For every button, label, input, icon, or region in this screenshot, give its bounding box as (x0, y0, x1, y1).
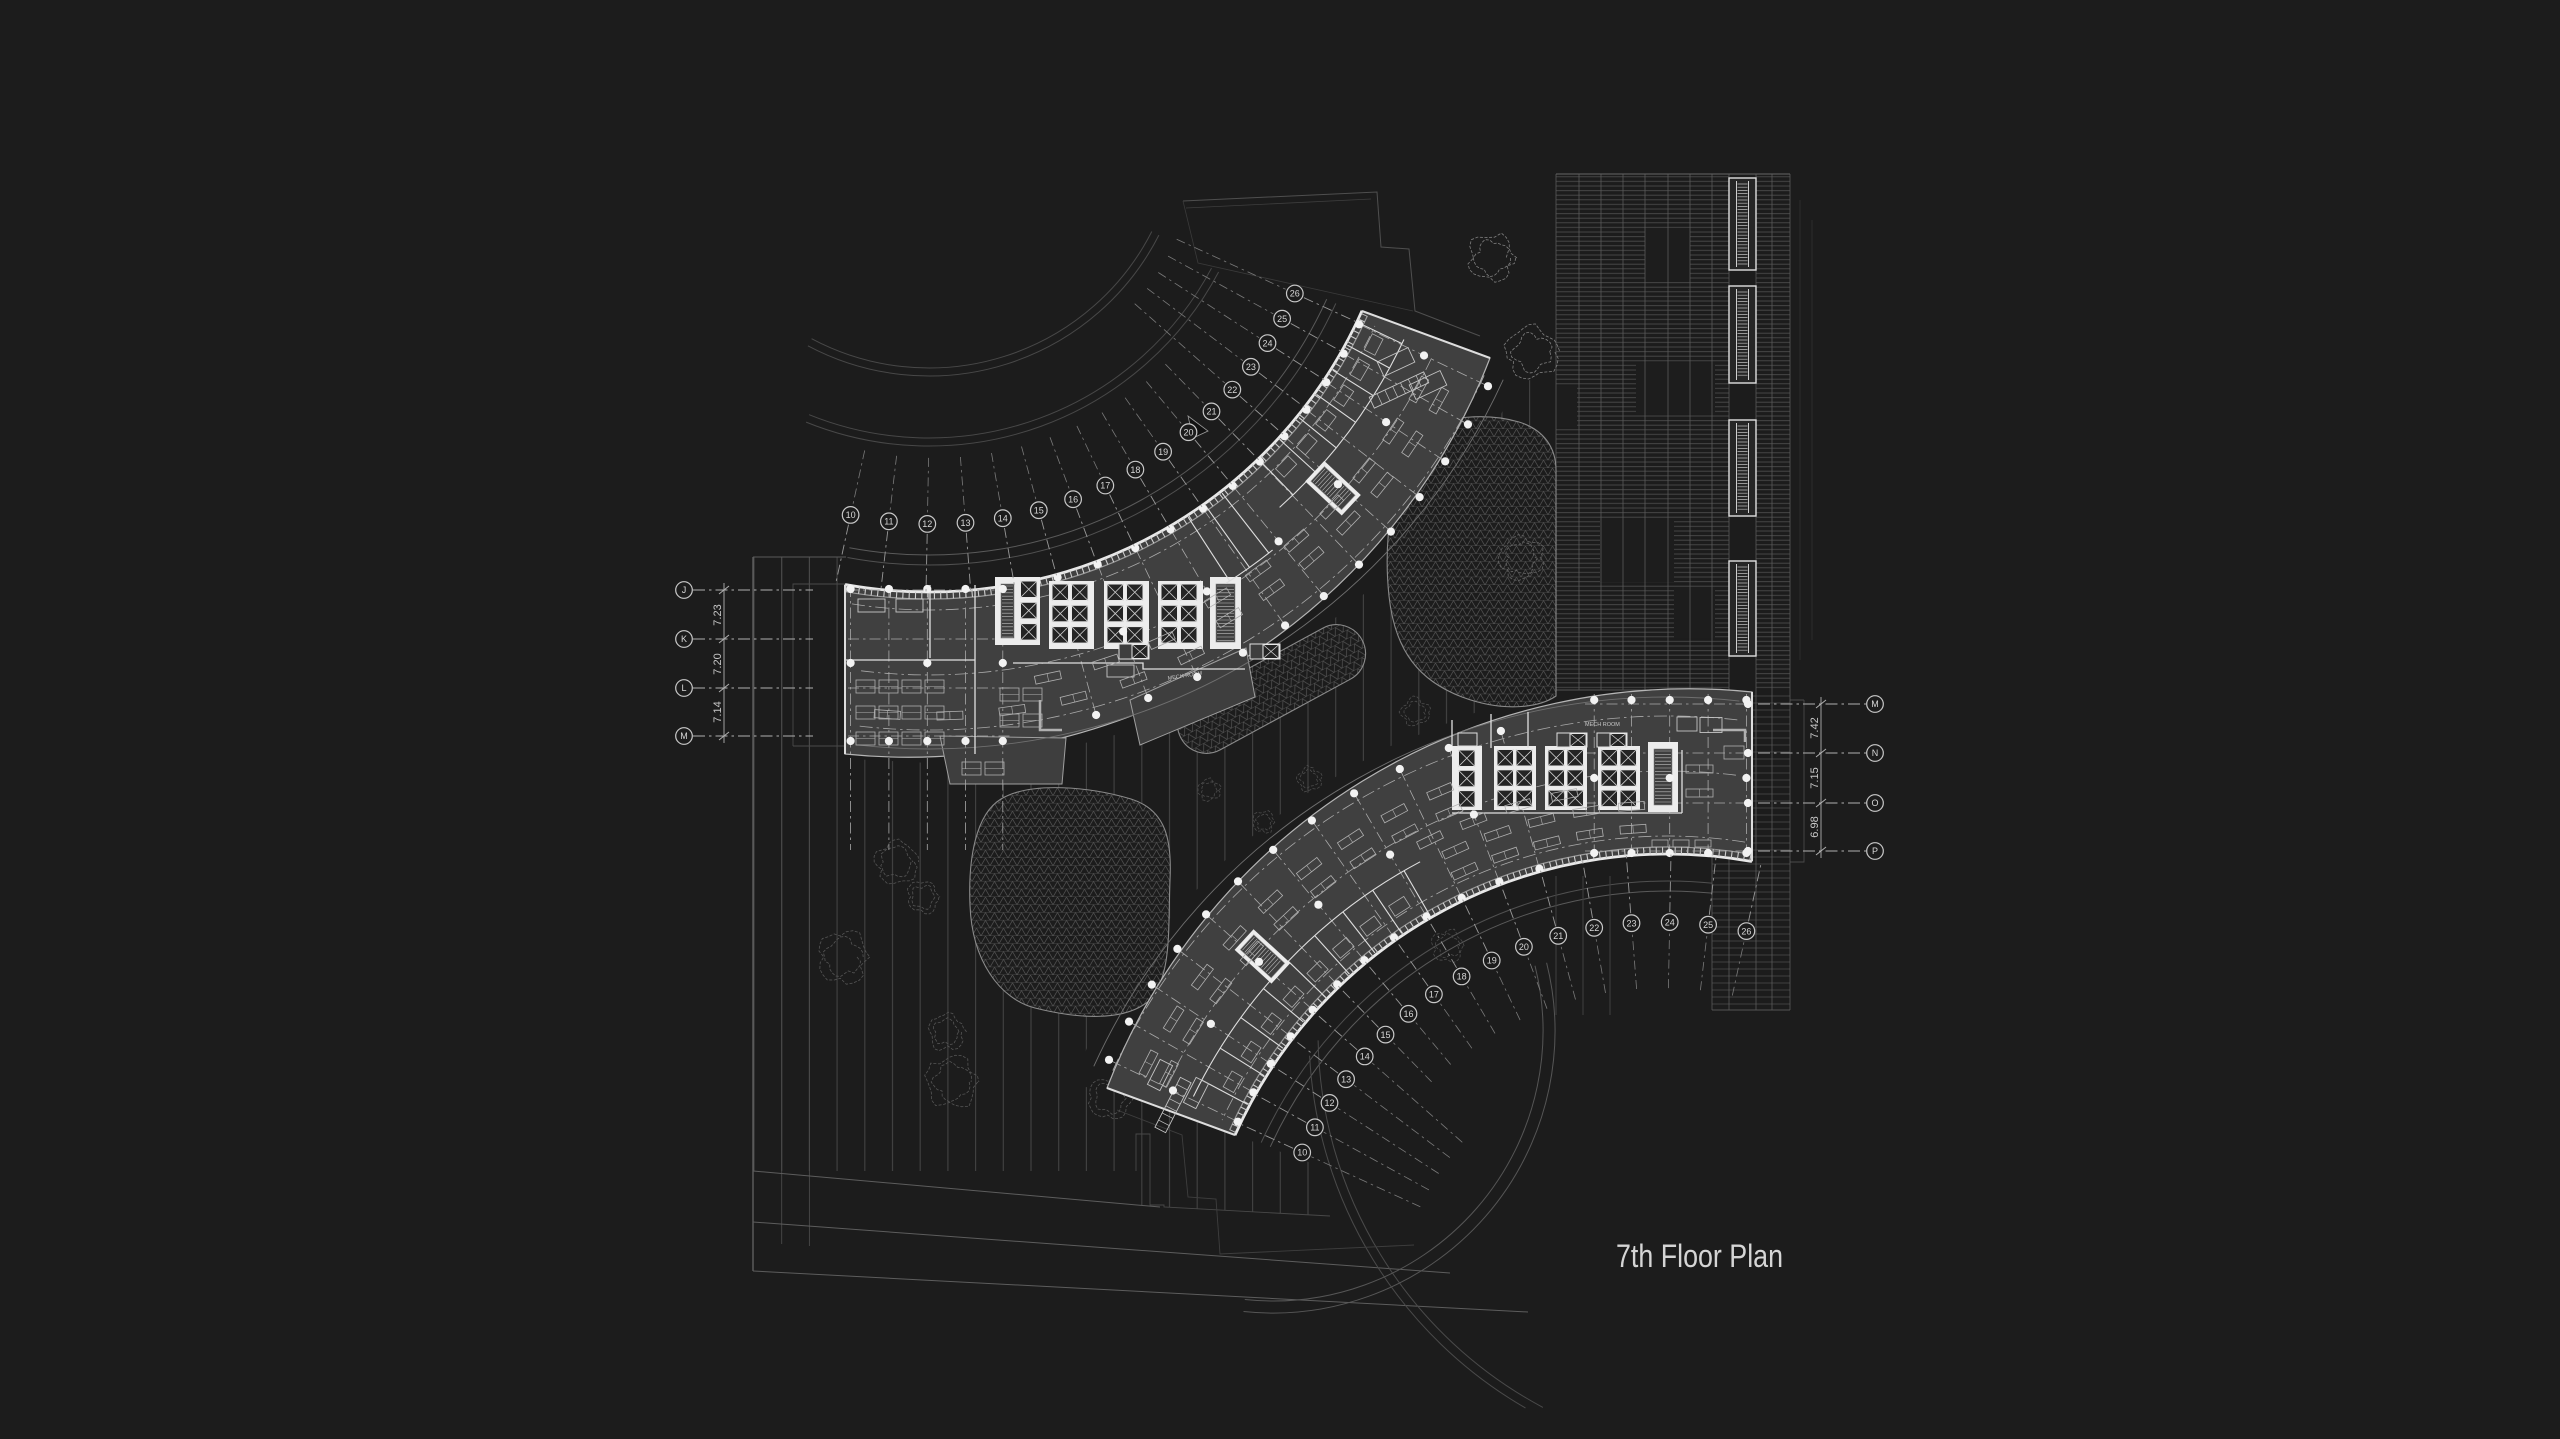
svg-text:M: M (1871, 699, 1879, 709)
svg-text:14: 14 (1360, 1052, 1370, 1062)
svg-text:7th Floor Plan: 7th Floor Plan (1616, 1238, 1783, 1274)
svg-text:19: 19 (1487, 956, 1497, 966)
svg-text:O: O (1871, 798, 1878, 808)
svg-text:11: 11 (884, 517, 893, 527)
svg-text:22: 22 (1227, 385, 1237, 395)
svg-text:7.14: 7.14 (712, 701, 724, 722)
svg-text:13: 13 (1341, 1074, 1351, 1084)
svg-text:23: 23 (1626, 918, 1636, 928)
svg-text:21: 21 (1206, 407, 1216, 417)
svg-text:14: 14 (998, 513, 1008, 523)
svg-text:20: 20 (1183, 427, 1193, 437)
svg-text:15: 15 (1380, 1030, 1390, 1040)
svg-text:P: P (1872, 846, 1878, 856)
svg-text:18: 18 (1457, 972, 1467, 982)
svg-text:19: 19 (1158, 447, 1168, 457)
svg-text:M: M (680, 731, 688, 741)
svg-text:12: 12 (1324, 1098, 1334, 1108)
svg-text:L: L (681, 683, 686, 693)
svg-text:21: 21 (1553, 931, 1563, 941)
svg-text:7.23: 7.23 (712, 604, 724, 625)
svg-text:7.20: 7.20 (712, 653, 724, 674)
svg-text:24: 24 (1262, 338, 1272, 348)
svg-text:23: 23 (1246, 362, 1256, 372)
svg-text:20: 20 (1519, 942, 1529, 952)
svg-text:25: 25 (1277, 314, 1287, 324)
svg-text:K: K (681, 634, 687, 644)
svg-text:17: 17 (1100, 481, 1110, 491)
svg-text:10: 10 (846, 510, 856, 520)
svg-text:6.98: 6.98 (1809, 816, 1821, 837)
svg-text:10: 10 (1297, 1148, 1307, 1158)
svg-text:13: 13 (960, 518, 970, 528)
svg-text:22: 22 (1589, 923, 1599, 933)
svg-text:24: 24 (1665, 917, 1675, 927)
svg-text:11: 11 (1310, 1123, 1319, 1133)
svg-text:16: 16 (1068, 494, 1078, 504)
svg-text:J: J (682, 585, 687, 595)
svg-text:N: N (1872, 748, 1879, 758)
svg-text:12: 12 (922, 519, 932, 529)
svg-text:26: 26 (1741, 926, 1751, 936)
svg-text:15: 15 (1034, 505, 1044, 515)
svg-text:MECH ROOM: MECH ROOM (1585, 722, 1620, 728)
svg-text:25: 25 (1703, 920, 1713, 930)
svg-text:7.42: 7.42 (1809, 717, 1821, 738)
svg-text:18: 18 (1130, 465, 1140, 475)
svg-text:7.15: 7.15 (1809, 767, 1821, 788)
svg-text:26: 26 (1290, 289, 1300, 299)
svg-text:16: 16 (1403, 1009, 1413, 1019)
svg-text:17: 17 (1429, 990, 1439, 1000)
